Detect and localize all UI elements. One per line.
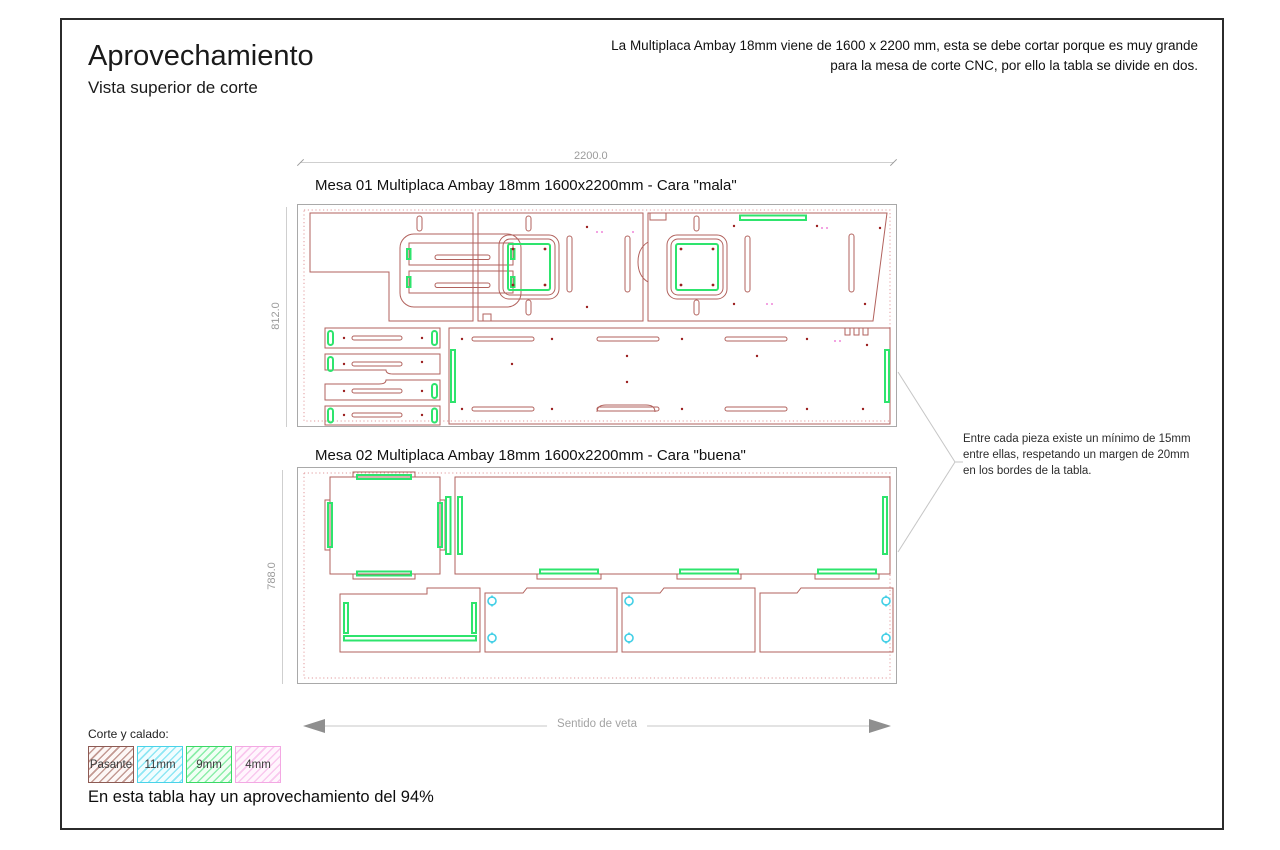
- dimension-mesa2-height-label: 788.0: [266, 558, 278, 594]
- dimension-line-mesa2-height: [282, 470, 283, 684]
- dimension-line-mesa1-height: [286, 207, 287, 427]
- legend-label-4mm: 4mm: [245, 759, 271, 771]
- dimension-width-label: 2200.0: [570, 150, 612, 162]
- annotation-leader-lines: [893, 358, 973, 573]
- arrowhead-left-icon: [303, 719, 325, 733]
- legend-swatch-pasante: Pasante: [88, 746, 134, 783]
- dimension-line-width: [300, 162, 894, 163]
- spacing-annotation: Entre cada pieza existe un mínimo de 15m…: [963, 431, 1205, 479]
- legend-label-pasante: Pasante: [90, 759, 132, 771]
- mesa2-drawing: [297, 467, 897, 684]
- mesa1-drawing: [297, 204, 897, 427]
- page-subtitle: Vista superior de corte: [88, 78, 258, 98]
- mesa1-label: Mesa 01 Multiplaca Ambay 18mm 1600x2200m…: [315, 177, 737, 194]
- legend-swatch-4mm: 4mm: [235, 746, 281, 783]
- intro-note: La Multiplaca Ambay 18mm viene de 1600 x…: [608, 36, 1198, 77]
- legend-label-11mm: 11mm: [144, 759, 175, 771]
- mesa2-label: Mesa 02 Multiplaca Ambay 18mm 1600x2200m…: [315, 447, 746, 464]
- legend-title: Corte y calado:: [88, 727, 169, 741]
- page: Aprovechamiento Vista superior de corte …: [0, 0, 1280, 850]
- dimension-mesa1-height-label: 812.0: [270, 298, 282, 334]
- legend-swatch-11mm: 11mm: [137, 746, 183, 783]
- grain-label: Sentido de veta: [547, 718, 647, 730]
- grain-direction: Sentido de veta: [297, 713, 897, 741]
- page-title: Aprovechamiento: [88, 40, 314, 73]
- legend-swatch-9mm: 9mm: [186, 746, 232, 783]
- utilization-note: En esta tabla hay un aprovechamiento del…: [88, 788, 434, 807]
- legend-label-9mm: 9mm: [196, 759, 222, 771]
- arrowhead-right-icon: [869, 719, 891, 733]
